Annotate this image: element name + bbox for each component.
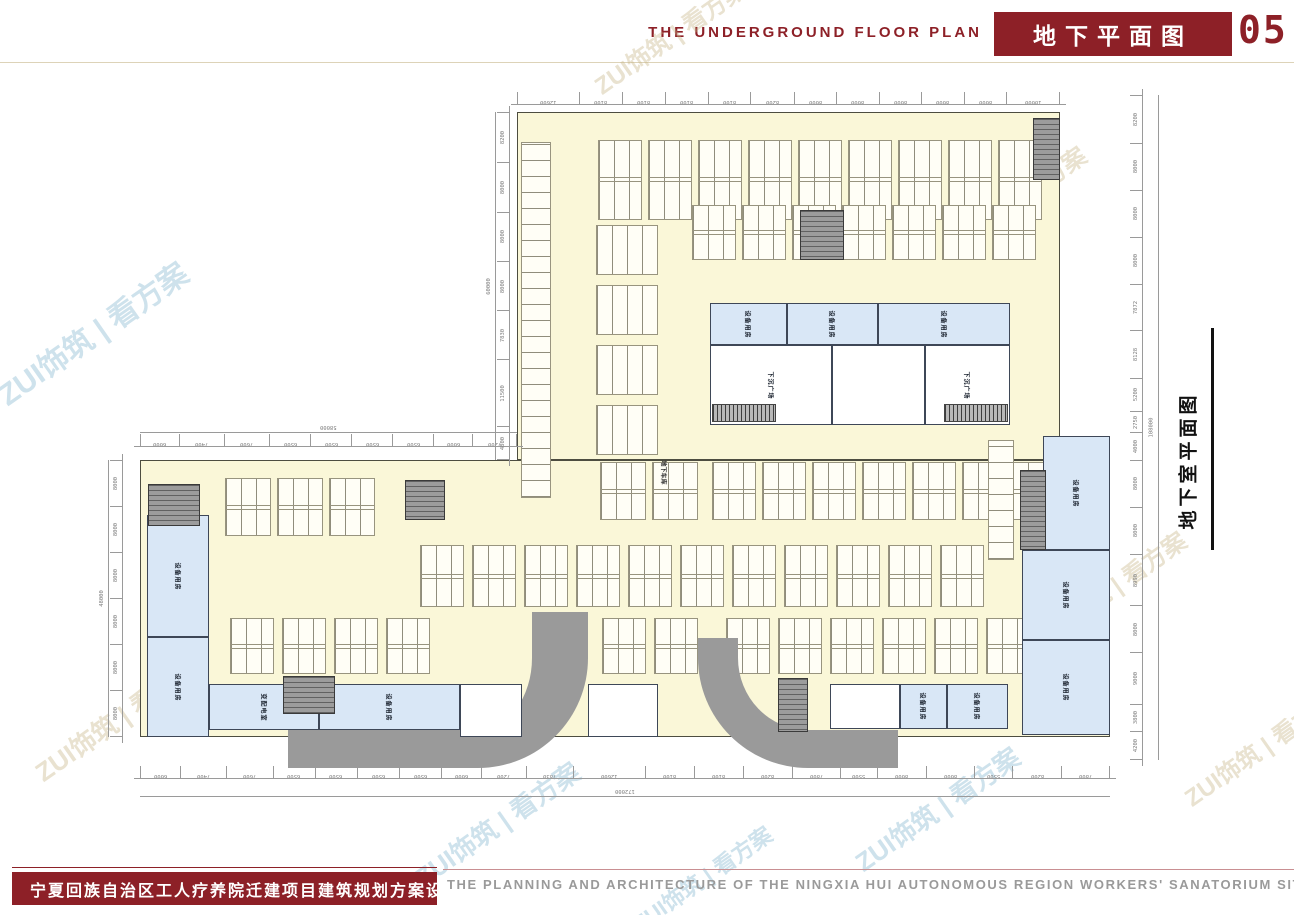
room-label: 设备用房 (828, 310, 837, 338)
dim-segment: 6500 (315, 766, 357, 779)
dim-total-value: 60000 (486, 278, 493, 295)
dim-segment: 8200 (1130, 95, 1143, 143)
dim-segment: 8000 (879, 92, 922, 105)
dim-value: 7872 (1133, 301, 1140, 314)
dim-segment: 8000 (110, 598, 123, 644)
dim-segment: 6500 (351, 434, 392, 447)
footer-red-rule (12, 867, 437, 868)
dim-segment: 8000 (110, 460, 123, 506)
dim-segment: 7600 (224, 434, 270, 447)
dim-segment: 6500 (357, 766, 399, 779)
parking-group (472, 545, 516, 607)
parking-group (596, 405, 658, 455)
dim-value: 7400 (195, 440, 208, 447)
parking-group (992, 205, 1036, 260)
dim-value: 5500 (987, 772, 1000, 779)
dim-segment: 11500 (497, 359, 510, 426)
dim-value: 8000 (1133, 160, 1140, 173)
dim-segment: 2750 (1130, 411, 1143, 432)
dim-value: 2750 (1133, 415, 1140, 428)
room-label: 设备用房 (385, 693, 394, 721)
room-label: 设备用房 (973, 692, 982, 720)
dim-value: 8000 (809, 98, 822, 105)
parking-group (329, 478, 375, 536)
stair-core (405, 480, 445, 520)
dim-value: 8000 (895, 772, 908, 779)
dim-segment: 6500 (392, 434, 433, 447)
dim-segment: 6000 (433, 434, 472, 447)
dim-value: 8000 (1133, 477, 1140, 490)
footer-pink-rule (443, 869, 1294, 870)
dim-value: 8000 (113, 661, 120, 674)
dim-value: 7200 (497, 772, 510, 779)
parking-group (680, 545, 724, 607)
room-label: 设备用房 (1061, 581, 1070, 609)
dim-segment: 3800 (1130, 704, 1143, 731)
area-label: 地下车库 (660, 460, 669, 484)
parking-group (225, 478, 271, 536)
dim-segment: 8000 (1130, 507, 1143, 554)
dim-segment: 8200 (1012, 766, 1061, 779)
dim-value: 11500 (500, 385, 507, 402)
dim-value: 8000 (851, 98, 864, 105)
dim-value: 8000 (979, 98, 992, 105)
parking-group (524, 545, 568, 607)
dim-segment: 8000 (877, 766, 925, 779)
dim-value: 8000 (113, 615, 120, 628)
equipment-room: 设备用房 (900, 684, 947, 729)
dim-segment: 7830 (497, 310, 510, 358)
dim-value: 6500 (325, 440, 338, 447)
equipment-room: 设备用房 (1043, 436, 1110, 550)
stair-hatch (944, 404, 1008, 422)
stair-core (1033, 118, 1060, 180)
room-label: 设备用房 (744, 310, 753, 338)
dim-value: 9000 (1133, 672, 1140, 685)
dim-segment: 6500 (399, 766, 441, 779)
dim-value: 8128 (1133, 348, 1140, 361)
parking-group (277, 478, 323, 536)
dim-value: 7800 (810, 772, 823, 779)
dim-segment: 8200 (743, 766, 792, 779)
equipment-room: 设备用房 (1022, 640, 1110, 735)
dim-value: 8200 (1133, 113, 1140, 126)
dim-value: 8200 (761, 772, 774, 779)
dim-segment: 8000 (926, 766, 974, 779)
parking-group (762, 462, 806, 520)
dim-value: 7830 (543, 772, 556, 779)
dim-segment: 8000 (794, 92, 837, 105)
dim-value: 4200 (1133, 739, 1140, 752)
parking-group (934, 618, 978, 674)
dim-value: 6500 (287, 772, 300, 779)
dim-segment: 8000 (1130, 190, 1143, 237)
dimension-total: 58000 (140, 420, 517, 433)
parking-group (596, 345, 658, 395)
dim-segment: 8000 (836, 92, 879, 105)
room-label: 下沉广场 (766, 371, 775, 399)
dim-value: 6500 (407, 440, 420, 447)
dim-value: 8100 (637, 98, 650, 105)
dim-value: 10000 (1025, 98, 1042, 105)
dim-segment: 8000 (1130, 143, 1143, 190)
dim-segment: 8100 (665, 92, 708, 105)
dim-value: 7400 (197, 772, 210, 779)
dim-value: 5200 (1133, 388, 1140, 401)
dim-segment: 9000 (1130, 652, 1143, 704)
dim-segment: 4200 (1130, 731, 1143, 760)
dim-segment: 8000 (1130, 237, 1143, 284)
dim-segment: 8000 (1130, 605, 1143, 652)
floor-plan-drawing: 设备用房设备用房设备用房下沉广场下沉广场设备用房设备用房变配电室设备用房设备用房… (0, 0, 1294, 915)
dimension-total: 48000 (96, 460, 109, 737)
parking-group (648, 140, 692, 220)
dim-value: 8000 (944, 772, 957, 779)
parking-group (692, 205, 736, 260)
dim-segment: 4000 (1130, 432, 1143, 459)
dim-value: 8000 (113, 523, 120, 536)
dim-segment: 6000 (140, 434, 179, 447)
dim-segment: 8100 (694, 766, 743, 779)
dim-value: 8100 (712, 772, 725, 779)
dim-segment: 8200 (497, 112, 510, 162)
dim-value: 3800 (1133, 711, 1140, 724)
dim-segment: 6500 (269, 434, 310, 447)
dim-segment: 8128 (1130, 330, 1143, 378)
dim-segment: 5500 (974, 766, 1012, 779)
dimension-column: 82008000800080007830115004800 (497, 112, 510, 460)
dim-value: 8200 (1031, 772, 1044, 779)
sunken-court (832, 345, 925, 425)
parking-group (812, 462, 856, 520)
parking-group (230, 618, 274, 674)
parking-group (842, 205, 886, 260)
equipment-room: 设备用房 (147, 515, 209, 637)
dim-value: 8100 (663, 772, 676, 779)
stair-hatch (712, 404, 776, 422)
dim-value: 8000 (500, 280, 507, 293)
dim-value: 8000 (500, 230, 507, 243)
dim-value: 8100 (594, 98, 607, 105)
dimension-column: 8200800080008000787281285200275040008000… (1130, 95, 1143, 760)
dim-segment: 10000 (1006, 92, 1060, 105)
dim-segment: 8000 (497, 261, 510, 310)
dim-value: 8000 (113, 707, 120, 720)
stair-core (148, 484, 200, 526)
dim-value: 8000 (1133, 524, 1140, 537)
dim-value: 7800 (1079, 772, 1092, 779)
equipment-room: 设备用房 (947, 684, 1008, 729)
dim-segment: 5200 (1130, 378, 1143, 411)
dim-value: 8200 (500, 131, 507, 144)
dim-value: 6500 (366, 440, 379, 447)
dim-value: 12600 (540, 98, 557, 105)
dim-value: 12600 (601, 772, 618, 779)
equipment-room: 设备用房 (787, 303, 878, 345)
dim-segment: 8000 (497, 162, 510, 211)
dim-segment: 8000 (964, 92, 1007, 105)
parking-group (940, 545, 984, 607)
room-label: 设备用房 (1072, 479, 1081, 507)
dim-value: 7600 (243, 772, 256, 779)
room-label: 变配电室 (259, 693, 268, 721)
dim-segment: 7400 (179, 434, 224, 447)
equipment-room: 设备用房 (710, 303, 787, 345)
dim-segment: 7830 (526, 766, 574, 779)
dim-value: 6500 (329, 772, 342, 779)
dim-segment: 8000 (497, 212, 510, 261)
dim-total-value: 48000 (99, 590, 106, 607)
dim-value: 8000 (1133, 207, 1140, 220)
dim-segment: 8100 (645, 766, 694, 779)
parking-group (598, 140, 642, 220)
dim-value: 7830 (500, 328, 507, 341)
parking-group (942, 205, 986, 260)
side-caption-text: 地下室平面图 (1174, 391, 1201, 529)
dim-segment: 8990 (1130, 554, 1143, 606)
dimension-total: 172000 (140, 784, 1110, 797)
footer-caption-en: THE PLANNING AND ARCHITECTURE OF THE NIN… (447, 877, 1294, 892)
parking-group (596, 285, 658, 335)
dimension-column: 800080008000800080008000 (110, 460, 123, 737)
dim-segment: 7800 (1061, 766, 1110, 779)
room-label: 设备用房 (173, 562, 182, 590)
dim-segment: 8000 (1130, 460, 1143, 507)
room-label: 设备用房 (173, 673, 182, 701)
parking-group (521, 142, 551, 498)
parking-group (602, 618, 646, 674)
dim-value: 6000 (455, 772, 468, 779)
dim-segment: 7600 (226, 766, 273, 779)
stair-core (800, 210, 844, 260)
stair-core (1020, 470, 1046, 550)
parking-group (628, 545, 672, 607)
equipment-room: 设备用房 (319, 684, 460, 730)
dim-value: 8000 (894, 98, 907, 105)
parking-group (784, 545, 828, 607)
parking-group (742, 205, 786, 260)
equipment-room: 设备用房 (878, 303, 1010, 345)
dim-value: 8000 (500, 181, 507, 194)
dimension-row: 6000740076006500650065006500600072007830… (140, 766, 1110, 779)
dim-value: 4800 (500, 436, 507, 449)
room-label: 设备用房 (939, 310, 948, 338)
footer-banner-text: 宁夏回族自治区工人疗养院迁建项目建筑规划方案设计 (12, 877, 462, 901)
dim-segment: 8000 (110, 552, 123, 598)
dim-value: 8000 (1133, 254, 1140, 267)
parking-group (596, 225, 658, 275)
dim-value: 5500 (852, 772, 865, 779)
dim-segment: 6000 (441, 766, 481, 779)
dim-value: 6000 (153, 440, 166, 447)
parking-group (732, 545, 776, 607)
dim-value: 8990 (1133, 573, 1140, 586)
parking-group (988, 440, 1014, 560)
parking-group (862, 462, 906, 520)
equipment-room: 设备用房 (1022, 550, 1110, 640)
sunken-court (460, 684, 522, 737)
dim-value: 6500 (284, 440, 297, 447)
dim-value: 8200 (766, 98, 779, 105)
dim-segment: 6500 (273, 766, 315, 779)
dim-segment: 6000 (140, 766, 180, 779)
room-label: 设备用房 (1061, 673, 1070, 701)
dim-segment: 12600 (573, 766, 644, 779)
dim-segment: 8000 (921, 92, 964, 105)
dim-value: 8000 (113, 477, 120, 490)
parking-group (912, 462, 956, 520)
dim-value: 8000 (936, 98, 949, 105)
dim-segment: 8100 (622, 92, 665, 105)
dim-segment: 8000 (110, 644, 123, 690)
dim-value: 8000 (1133, 623, 1140, 636)
dim-segment: 8200 (750, 92, 793, 105)
dim-segment: 7872 (1130, 284, 1143, 330)
footer-banner: 宁夏回族自治区工人疗养院迁建项目建筑规划方案设计 (12, 872, 437, 905)
dimension-row: 1260081008100810081008200800080008000800… (517, 92, 1060, 105)
stair-core (283, 676, 335, 714)
dimension-total: 60000 (483, 112, 496, 460)
dim-segment: 5500 (840, 766, 878, 779)
dim-segment: 7400 (180, 766, 226, 779)
dim-value: 8000 (113, 569, 120, 582)
sunken-court (588, 684, 658, 737)
parking-group (420, 545, 464, 607)
dim-value: 6000 (447, 440, 460, 447)
parking-group (654, 618, 698, 674)
dim-segment: 7200 (481, 766, 526, 779)
dimension-row: 600074007600650065006500650060007200 (140, 434, 517, 447)
dim-segment: 8100 (579, 92, 622, 105)
side-caption-rule (1211, 328, 1214, 550)
dim-segment: 8000 (110, 506, 123, 552)
dim-segment: 8100 (708, 92, 751, 105)
dim-total-value: 172000 (615, 787, 635, 794)
dim-value: 6000 (154, 772, 167, 779)
dim-value: 6500 (414, 772, 427, 779)
dim-segment: 6500 (310, 434, 351, 447)
dim-segment: 7800 (792, 766, 840, 779)
parking-group (712, 462, 756, 520)
parking-group (576, 545, 620, 607)
presentation-slide: THE UNDERGROUND FLOOR PLAN 地下平面图 05 ZUI饰… (0, 0, 1294, 915)
room-label: 设备用房 (919, 692, 928, 720)
dim-value: 8100 (680, 98, 693, 105)
dim-segment: 8000 (110, 690, 123, 737)
stair-core (778, 678, 808, 732)
equipment-room: 设备用房 (147, 637, 209, 737)
parking-group (600, 462, 646, 520)
dim-value: 8100 (723, 98, 736, 105)
dim-value: 7600 (240, 440, 253, 447)
dim-value: 4000 (1133, 440, 1140, 453)
parking-group (836, 545, 880, 607)
sunken-court (830, 684, 900, 729)
parking-group (888, 545, 932, 607)
room-label: 下沉广场 (963, 371, 972, 399)
dim-segment: 12600 (517, 92, 579, 105)
dim-total-value: 58000 (320, 423, 337, 430)
parking-group (892, 205, 936, 260)
dim-value: 6500 (372, 772, 385, 779)
